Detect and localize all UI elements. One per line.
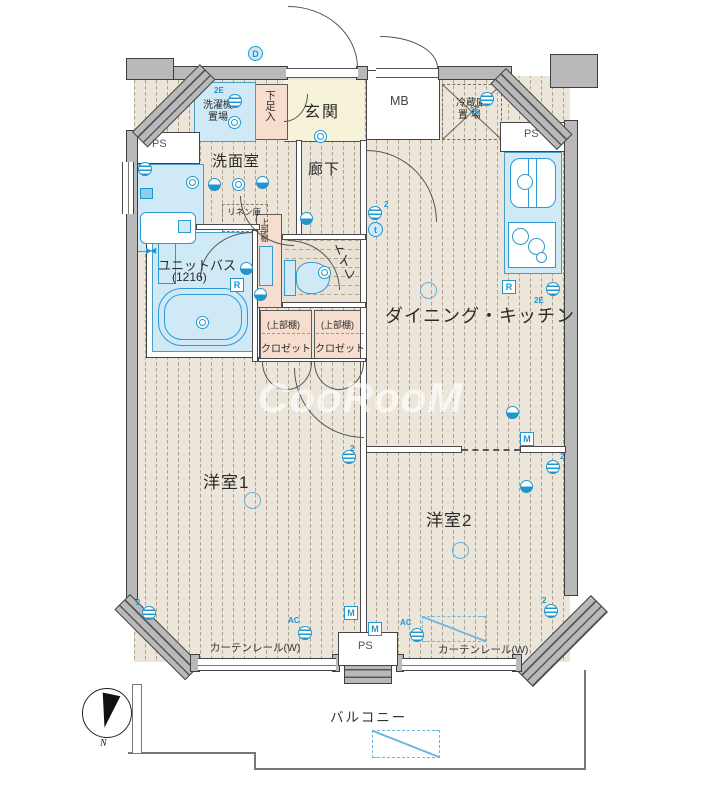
wall-corner-top-left-block [126, 58, 174, 80]
compass-needle [96, 693, 121, 730]
washroom-label: 洗面室 [212, 150, 260, 171]
bathtub-inner [164, 294, 242, 340]
stove-burner-1 [512, 228, 529, 245]
wall-bath-right [252, 230, 258, 362]
room1-label: 洋室1 [203, 468, 249, 493]
stove-burner-3 [536, 252, 547, 263]
balcony-rail-bottom-left [128, 752, 256, 754]
balcony-label: バルコニー [330, 706, 407, 726]
wall-spine-3 [360, 438, 367, 660]
balcony-rail-bottom-right [254, 768, 586, 770]
window-room2 [402, 658, 516, 671]
compass [82, 688, 132, 738]
circled-symbol: D [248, 46, 263, 61]
wall-toilet-top [282, 234, 366, 240]
window-room1 [198, 658, 336, 671]
ps-left-label: PS [152, 138, 167, 150]
meter-box-label: MB [390, 94, 409, 108]
curtain-rail-right-label: カーテンレール(W) [438, 642, 528, 657]
meterbox-door-arc [380, 36, 438, 68]
shoe-box-label: 下足入 [263, 90, 278, 122]
ps-bottom-label: PS [358, 640, 373, 652]
meterbox-threshold [376, 68, 438, 78]
washlet-shelf [259, 246, 273, 286]
wall-toilet-bottom [282, 302, 366, 308]
wall-corridor-washroom [296, 140, 302, 236]
closet1-label: クロゼット [261, 340, 311, 355]
curtain-rail-left-label: カーテンレール(W) [210, 640, 300, 655]
wall-right [564, 120, 578, 596]
closet2-divider [316, 333, 364, 334]
wall-partition-dk-room2-left [366, 446, 462, 453]
wall-corner-top-right-block [550, 54, 598, 88]
dk-door-sill [360, 150, 367, 224]
closet2-upper-label: (上部棚) [321, 318, 354, 331]
partition-dashed-opening [462, 449, 520, 451]
linen-label: リネン庫 [227, 206, 261, 218]
kitchen-sink-bowl [517, 174, 533, 190]
dining-kitchen-label: ダイニング・キッチン [385, 302, 575, 328]
wall-partition-dk-room2-right [520, 446, 566, 453]
room2-label: 洋室2 [426, 506, 472, 531]
entrance-door-arc [288, 6, 358, 68]
compass-north-label: N [100, 738, 107, 749]
ps-right-label: PS [524, 128, 539, 140]
balcony-rail-right [584, 670, 586, 770]
balcony-rail-left [132, 684, 142, 754]
corridor-label: 廊下 [308, 158, 340, 179]
entrance-threshold [286, 68, 358, 78]
watermark: CooRooM [258, 374, 463, 422]
bath-size-label: (1216) [172, 270, 207, 284]
closet1-divider [262, 333, 310, 334]
entrance-label: 玄関 [304, 98, 340, 122]
vanity-sink [178, 220, 191, 233]
laundry-label-2: 置場 [208, 108, 228, 123]
drect-symbol [372, 730, 440, 758]
window-vanity [122, 162, 134, 214]
fridge-label-2: 置 場 [458, 106, 481, 121]
closet2-label: クロゼット [315, 340, 365, 355]
upper-shelf-label: 上部棚 [259, 218, 270, 242]
floor-plan: 玄関 下足入 MB 洗濯機 置場 冷蔵庫 置 場 PS PS PS 洗面室 リネ… [0, 0, 712, 800]
closet1-upper-label: (上部棚) [267, 318, 300, 331]
